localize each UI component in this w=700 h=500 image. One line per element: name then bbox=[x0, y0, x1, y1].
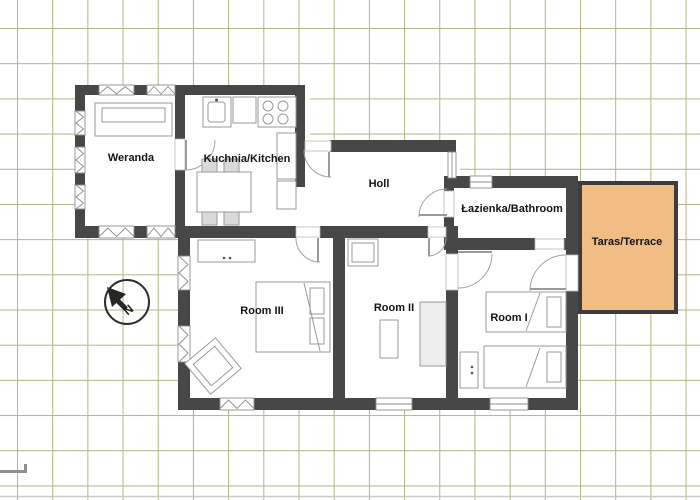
room3-dresser bbox=[198, 240, 255, 262]
room-label-terrace: Taras/Terrace bbox=[592, 236, 663, 248]
kitchen-cabinet-low bbox=[277, 181, 296, 209]
room-label-weranda: Weranda bbox=[108, 152, 155, 164]
room-label-room2: Room II bbox=[374, 302, 414, 314]
kitchen-stove bbox=[258, 97, 296, 127]
kitchen-counter bbox=[233, 97, 256, 123]
room1-bed-2 bbox=[484, 346, 566, 388]
room2-crib bbox=[348, 239, 378, 266]
room2-wardrobe bbox=[420, 302, 446, 366]
room3-double-bed bbox=[256, 282, 330, 352]
room1-cabinet bbox=[460, 352, 478, 388]
floor-plan-svg: Weranda Kuchnia/Kitchen Holl Łazienka/Ba… bbox=[0, 0, 700, 500]
room-label-holl: Holl bbox=[369, 178, 390, 190]
floor-plan-page: Weranda Kuchnia/Kitchen Holl Łazienka/Ba… bbox=[0, 0, 700, 500]
kitchen-sink bbox=[203, 97, 231, 127]
compass-north-label: N bbox=[121, 302, 137, 318]
compass-icon: N bbox=[105, 280, 149, 324]
scale-mark bbox=[0, 464, 27, 473]
room-label-kitchen: Kuchnia/Kitchen bbox=[204, 153, 291, 165]
weranda-bed bbox=[95, 103, 172, 136]
room2-table bbox=[380, 320, 398, 358]
room-label-bathroom: Łazienka/Bathroom bbox=[461, 203, 563, 215]
room-label-room1: Room I bbox=[490, 312, 527, 324]
room-label-room3: Room III bbox=[240, 305, 283, 317]
floor-holl bbox=[300, 140, 460, 240]
